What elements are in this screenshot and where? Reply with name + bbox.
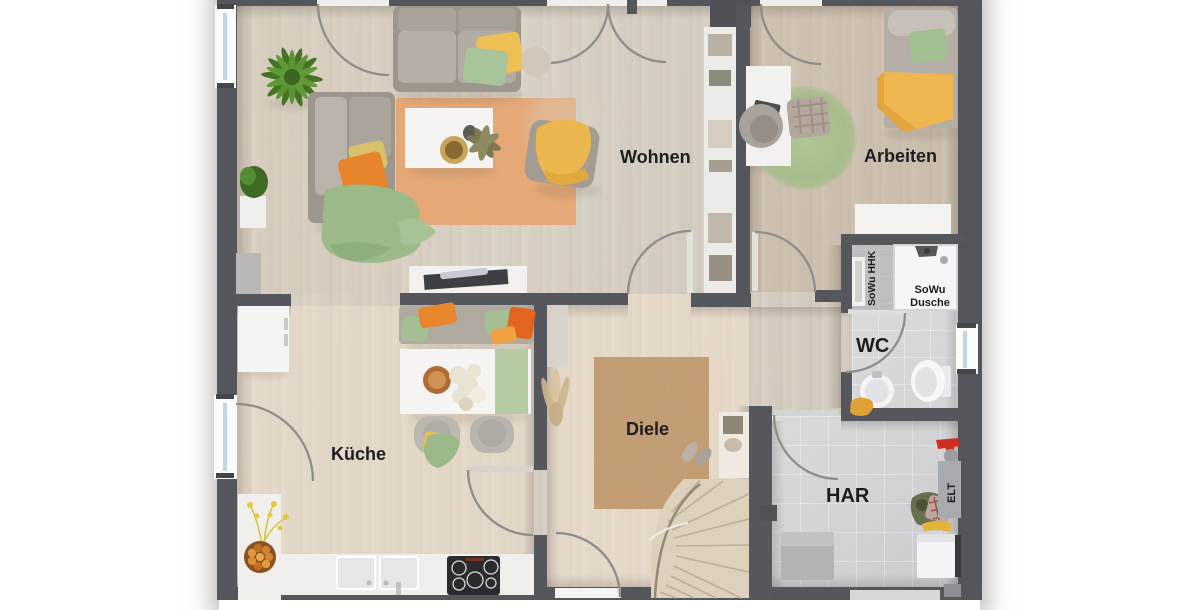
- svg-text:Arbeiten: Arbeiten: [864, 146, 937, 166]
- svg-text:Dusche: Dusche: [910, 297, 950, 309]
- svg-text:ELT: ELT: [946, 483, 958, 503]
- svg-text:HAR: HAR: [826, 485, 870, 507]
- svg-text:SoWu HHK: SoWu HHK: [866, 250, 878, 306]
- svg-text:Küche: Küche: [331, 444, 386, 464]
- svg-text:Wohnen: Wohnen: [620, 147, 691, 167]
- svg-text:SoWu: SoWu: [915, 284, 946, 296]
- svg-text:Diele: Diele: [626, 419, 669, 439]
- svg-text:WC: WC: [856, 335, 889, 357]
